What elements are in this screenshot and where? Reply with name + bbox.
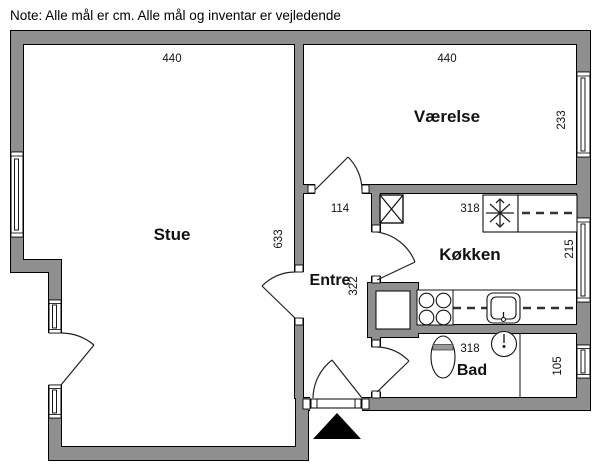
dim-entre-width: 114 (331, 203, 350, 215)
kitchen-sink-icon (487, 293, 520, 323)
dim-bad-depth: 105 (552, 356, 564, 375)
toilet-icon (431, 336, 455, 378)
bad-window (577, 345, 590, 378)
room-label-bad: Bad (457, 362, 487, 379)
stove-burners-icon (417, 290, 453, 325)
entrance-arrow-icon (313, 413, 361, 439)
dim-koekken-depth: 215 (564, 239, 576, 258)
room-label-entre: Entre (310, 272, 351, 289)
dim-vaerelse-width: 440 (437, 53, 456, 65)
koekken-door-swing (377, 232, 415, 280)
stue-balcony-window-lower (49, 385, 61, 418)
plan-note: Note: Alle mål er cm. Alle mål og invent… (10, 8, 341, 23)
dim-stue-width: 440 (162, 53, 181, 65)
fridge-freezer (483, 195, 518, 232)
room-label-vaerelse: Værelse (414, 107, 480, 126)
balcony-door-swing (61, 333, 94, 385)
room-label-stue: Stue (154, 225, 191, 244)
door-openings (47, 183, 382, 412)
walls (11, 31, 590, 460)
tall-cabinet (518, 195, 577, 232)
dim-entre-depth: 322 (348, 276, 360, 295)
room-label-koekken: Køkken (439, 245, 500, 264)
dim-vaerelse-depth: 233 (556, 110, 568, 129)
vaerelse-window (577, 72, 590, 157)
stue-left-window (11, 152, 23, 237)
entre-closet (376, 291, 410, 329)
koekken-window (577, 218, 590, 302)
stue-door-swing (262, 272, 295, 318)
dim-bad-width: 318 (460, 343, 479, 355)
washbasin-icon (492, 332, 517, 357)
entrance-door (311, 360, 362, 408)
stue-balcony-window-upper (49, 300, 61, 333)
dim-koekken-width: 318 (460, 203, 479, 215)
floor-plan-page: Note: Alle mål er cm. Alle mål og invent… (0, 0, 600, 472)
floor-plan-drawing: Note: Alle mål er cm. Alle mål og invent… (0, 0, 600, 472)
dim-stue-depth: 633 (273, 229, 285, 248)
vent-shaft-icon (380, 195, 403, 223)
